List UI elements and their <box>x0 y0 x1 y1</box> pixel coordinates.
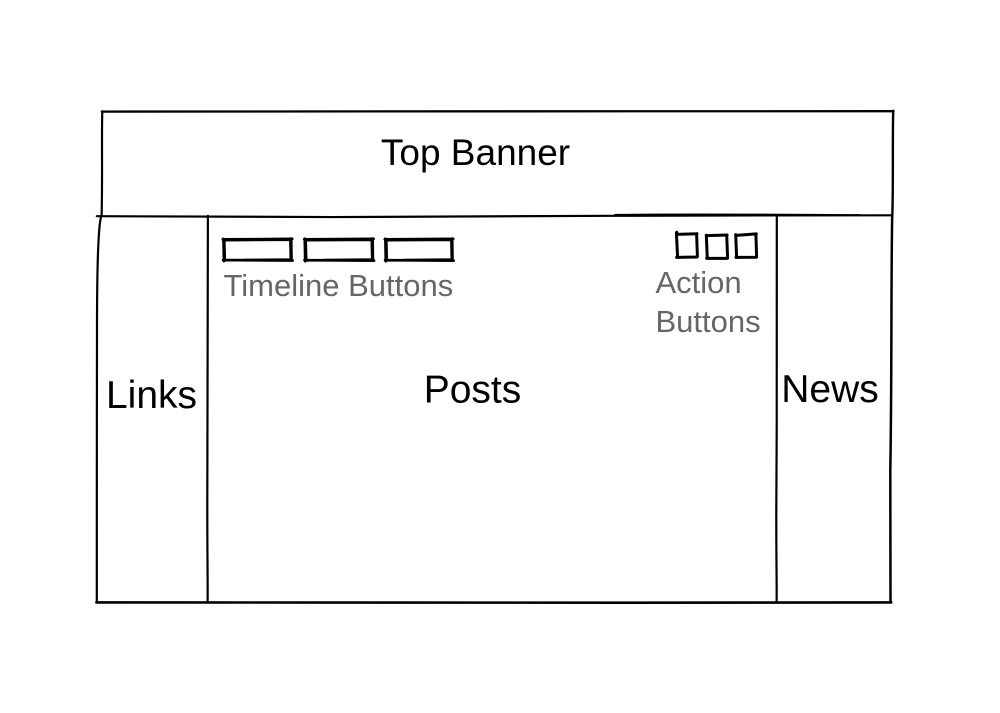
svg-text:Timeline Buttons: Timeline Buttons <box>224 268 454 303</box>
svg-text:News: News <box>781 368 879 411</box>
svg-text:Buttons: Buttons <box>656 304 761 339</box>
svg-text:Links: Links <box>106 374 197 417</box>
svg-text:Posts: Posts <box>424 369 522 412</box>
svg-text:Top Banner: Top Banner <box>381 132 570 173</box>
svg-text:Action: Action <box>656 265 742 300</box>
